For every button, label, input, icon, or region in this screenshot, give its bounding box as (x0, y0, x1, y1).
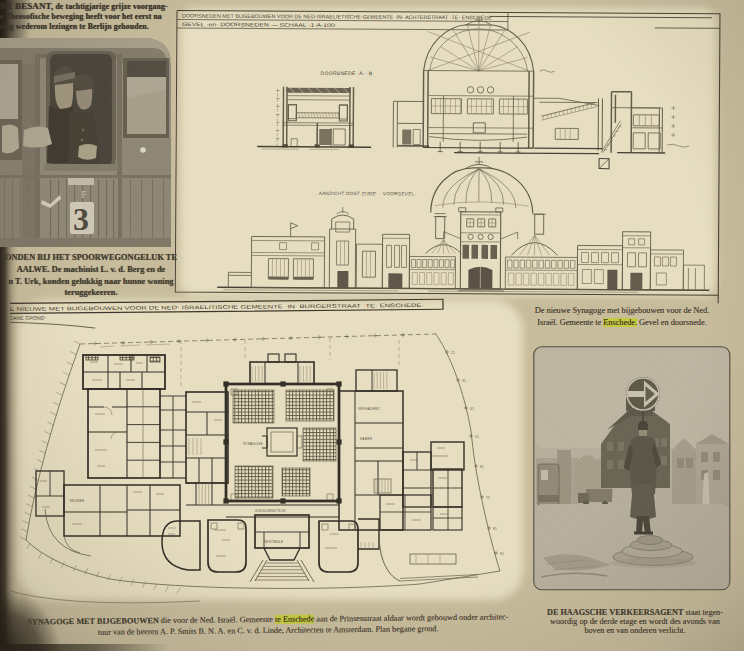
svg-text:41: 41 (470, 407, 474, 411)
svg-text:71: 71 (486, 496, 490, 500)
svg-text:AANZICHT OOST·ZIJDE ·· VOORGEV: AANZICHT OOST·ZIJDE ·· VOORGEVEL· (319, 191, 416, 197)
svg-text:31: 31 (462, 379, 466, 383)
svg-text:VERGADERZ.: VERGADERZ. (358, 407, 381, 411)
svg-text:KEUKEN: KEUKEN (70, 499, 85, 503)
svg-text:DOORSNEDEN MET BIJGEBOUWEN VOO: DOORSNEDEN MET BIJGEBOUWEN VOOR DE NED·I… (182, 13, 493, 21)
svg-text:21: 21 (451, 351, 455, 355)
svg-text:BEGANE GROND·: BEGANE GROND· (10, 315, 47, 321)
svg-text:51: 51 (475, 435, 479, 439)
svg-text:DOORSNEDE ·A·-·B·: DOORSNEDE ·A·-·B· (321, 70, 375, 76)
svg-text:KAMER: KAMER (360, 437, 373, 441)
svg-text:VESTIBULE: VESTIBULE (264, 540, 283, 544)
svg-text:91: 91 (500, 552, 504, 556)
svg-text:GODSDIENSTSCH.: GODSDIENSTSCH. (255, 509, 287, 513)
svg-text:81: 81 (493, 527, 497, 531)
svg-text:GEVEL ·en· DOORSNEDEN — SCHAAL: GEVEL ·en· DOORSNEDEN — SCHAAL ·1·A·100· (182, 21, 337, 28)
svg-text:SYNAGOGE: SYNAGOGE (243, 442, 263, 446)
svg-text:61: 61 (480, 465, 484, 469)
